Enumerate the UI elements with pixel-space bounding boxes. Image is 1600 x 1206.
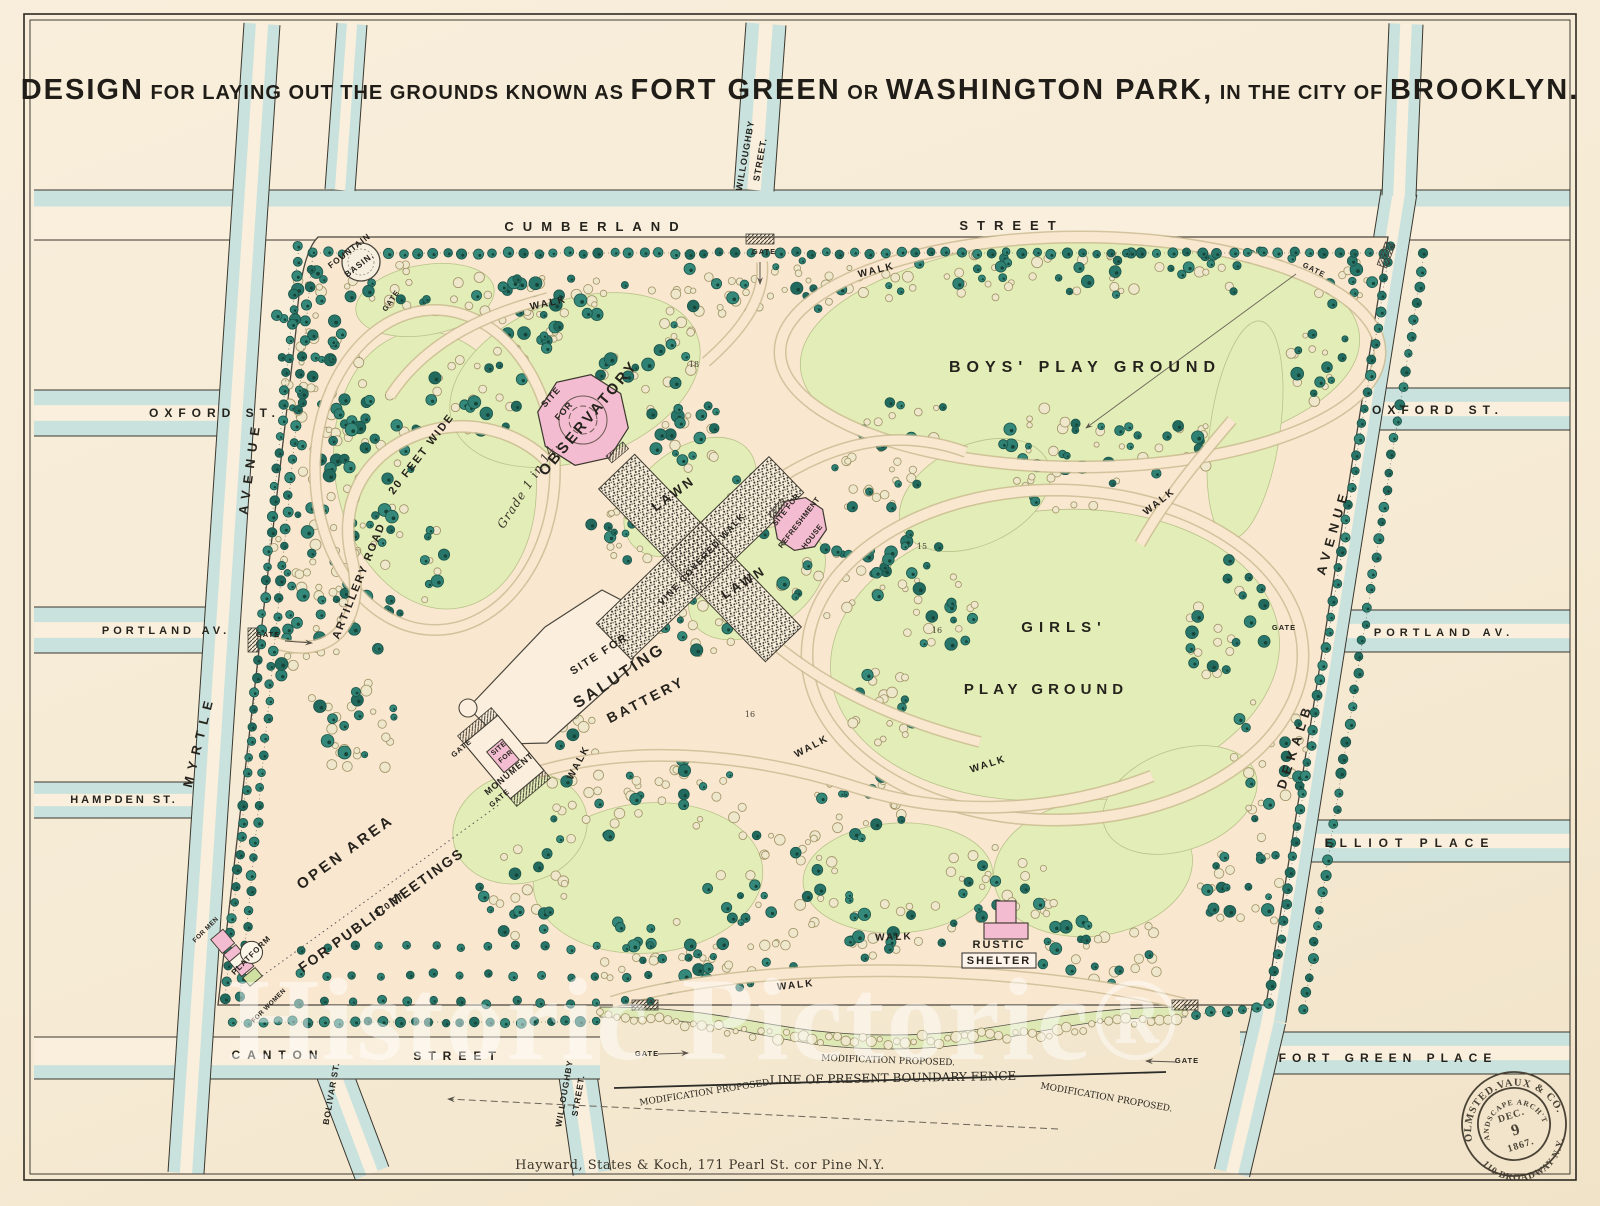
street-label-oxford-left: OXFORD ST. [149, 406, 281, 420]
map-title: DESIGN FOR LAYING OUT THE GROUNDS KNOWN … [0, 74, 1600, 107]
fence-label-mod-right: MODIFICATION PROPOSED. [1040, 1081, 1174, 1114]
stamp-year: 1867. [1506, 1136, 1536, 1155]
street-label-elliot: ELLIOT PLACE [1325, 836, 1496, 850]
feature-label-girls-1: GIRLS' [1021, 619, 1106, 636]
title-segment: BROOKLYN. [1390, 74, 1579, 106]
street-label-portland-right: PORTLAND AV. [1374, 627, 1514, 639]
title-segment: OR [841, 82, 886, 104]
contour-label-3: 16 [745, 710, 755, 719]
feature-label-boys-playground: BOYS' PLAY GROUND [949, 359, 1221, 376]
fence-label-mod-center: MODIFICATION PROPOSED. [821, 1054, 955, 1069]
park-map: CUMBERLANDSTREETWILLOUGHBYSTREET.OXFORD … [0, 0, 1600, 1206]
contour-label-0: 18 [689, 360, 699, 369]
title-segment: FORT GREEN [631, 74, 841, 106]
street-label-canton: CANTON [231, 1048, 324, 1062]
street-label-canton-street: STREET [413, 1049, 502, 1063]
map-sheet: DESIGN FOR LAYING OUT THE GROUNDS KNOWN … [0, 0, 1600, 1206]
title-segment: FOR LAYING OUT THE GROUNDS KNOWN AS [144, 82, 631, 104]
walk-label-6: WALK [875, 931, 913, 943]
stamp-day: 9 [1509, 1121, 1523, 1140]
gate-label-7: GATE [1175, 1056, 1199, 1065]
street-label-portland-left: PORTLAND AV. [102, 625, 230, 637]
gate-label-0: GATE [752, 247, 776, 256]
street-label-oxford-right: OXFORD ST. [1372, 403, 1504, 417]
contour-label-1: 15 [917, 542, 927, 551]
contour-label-2: 16 [932, 626, 942, 635]
feature-label-shelter: SHELTER [967, 955, 1032, 967]
street-label-cumberland-street: STREET [959, 218, 1064, 233]
gate-label-8: GATE [1272, 623, 1296, 632]
printer-imprint: Hayward, States & Koch, 171 Pearl St. co… [300, 1158, 1100, 1173]
feature-label-rustic: RUSTIC [973, 939, 1026, 951]
title-segment: WASHINGTON PARK, [886, 74, 1213, 106]
street-label-hampden: HAMPDEN ST. [70, 794, 178, 806]
feature-label-girls-2: PLAY GROUND [964, 681, 1128, 698]
gate-label-3: GATE [256, 630, 280, 639]
stamp-seal: OLMSTED.VAUX & CO. 110 BROADWAY N.Y. LAN… [1448, 1058, 1583, 1197]
fence-label-mod-left: MODIFICATION PROPOSED. [639, 1078, 773, 1109]
title-segment: DESIGN [21, 74, 144, 106]
title-segment: IN THE CITY OF [1213, 82, 1390, 104]
street-label-cumberland: CUMBERLAND [504, 219, 687, 234]
street-label-fort-green: FORT GREEN PLACE [1279, 1051, 1498, 1065]
fence-label-fence-line: LINE OF PRESENT BOUNDARY FENCE [770, 1069, 1017, 1087]
gate-label-6: GATE [635, 1049, 659, 1058]
